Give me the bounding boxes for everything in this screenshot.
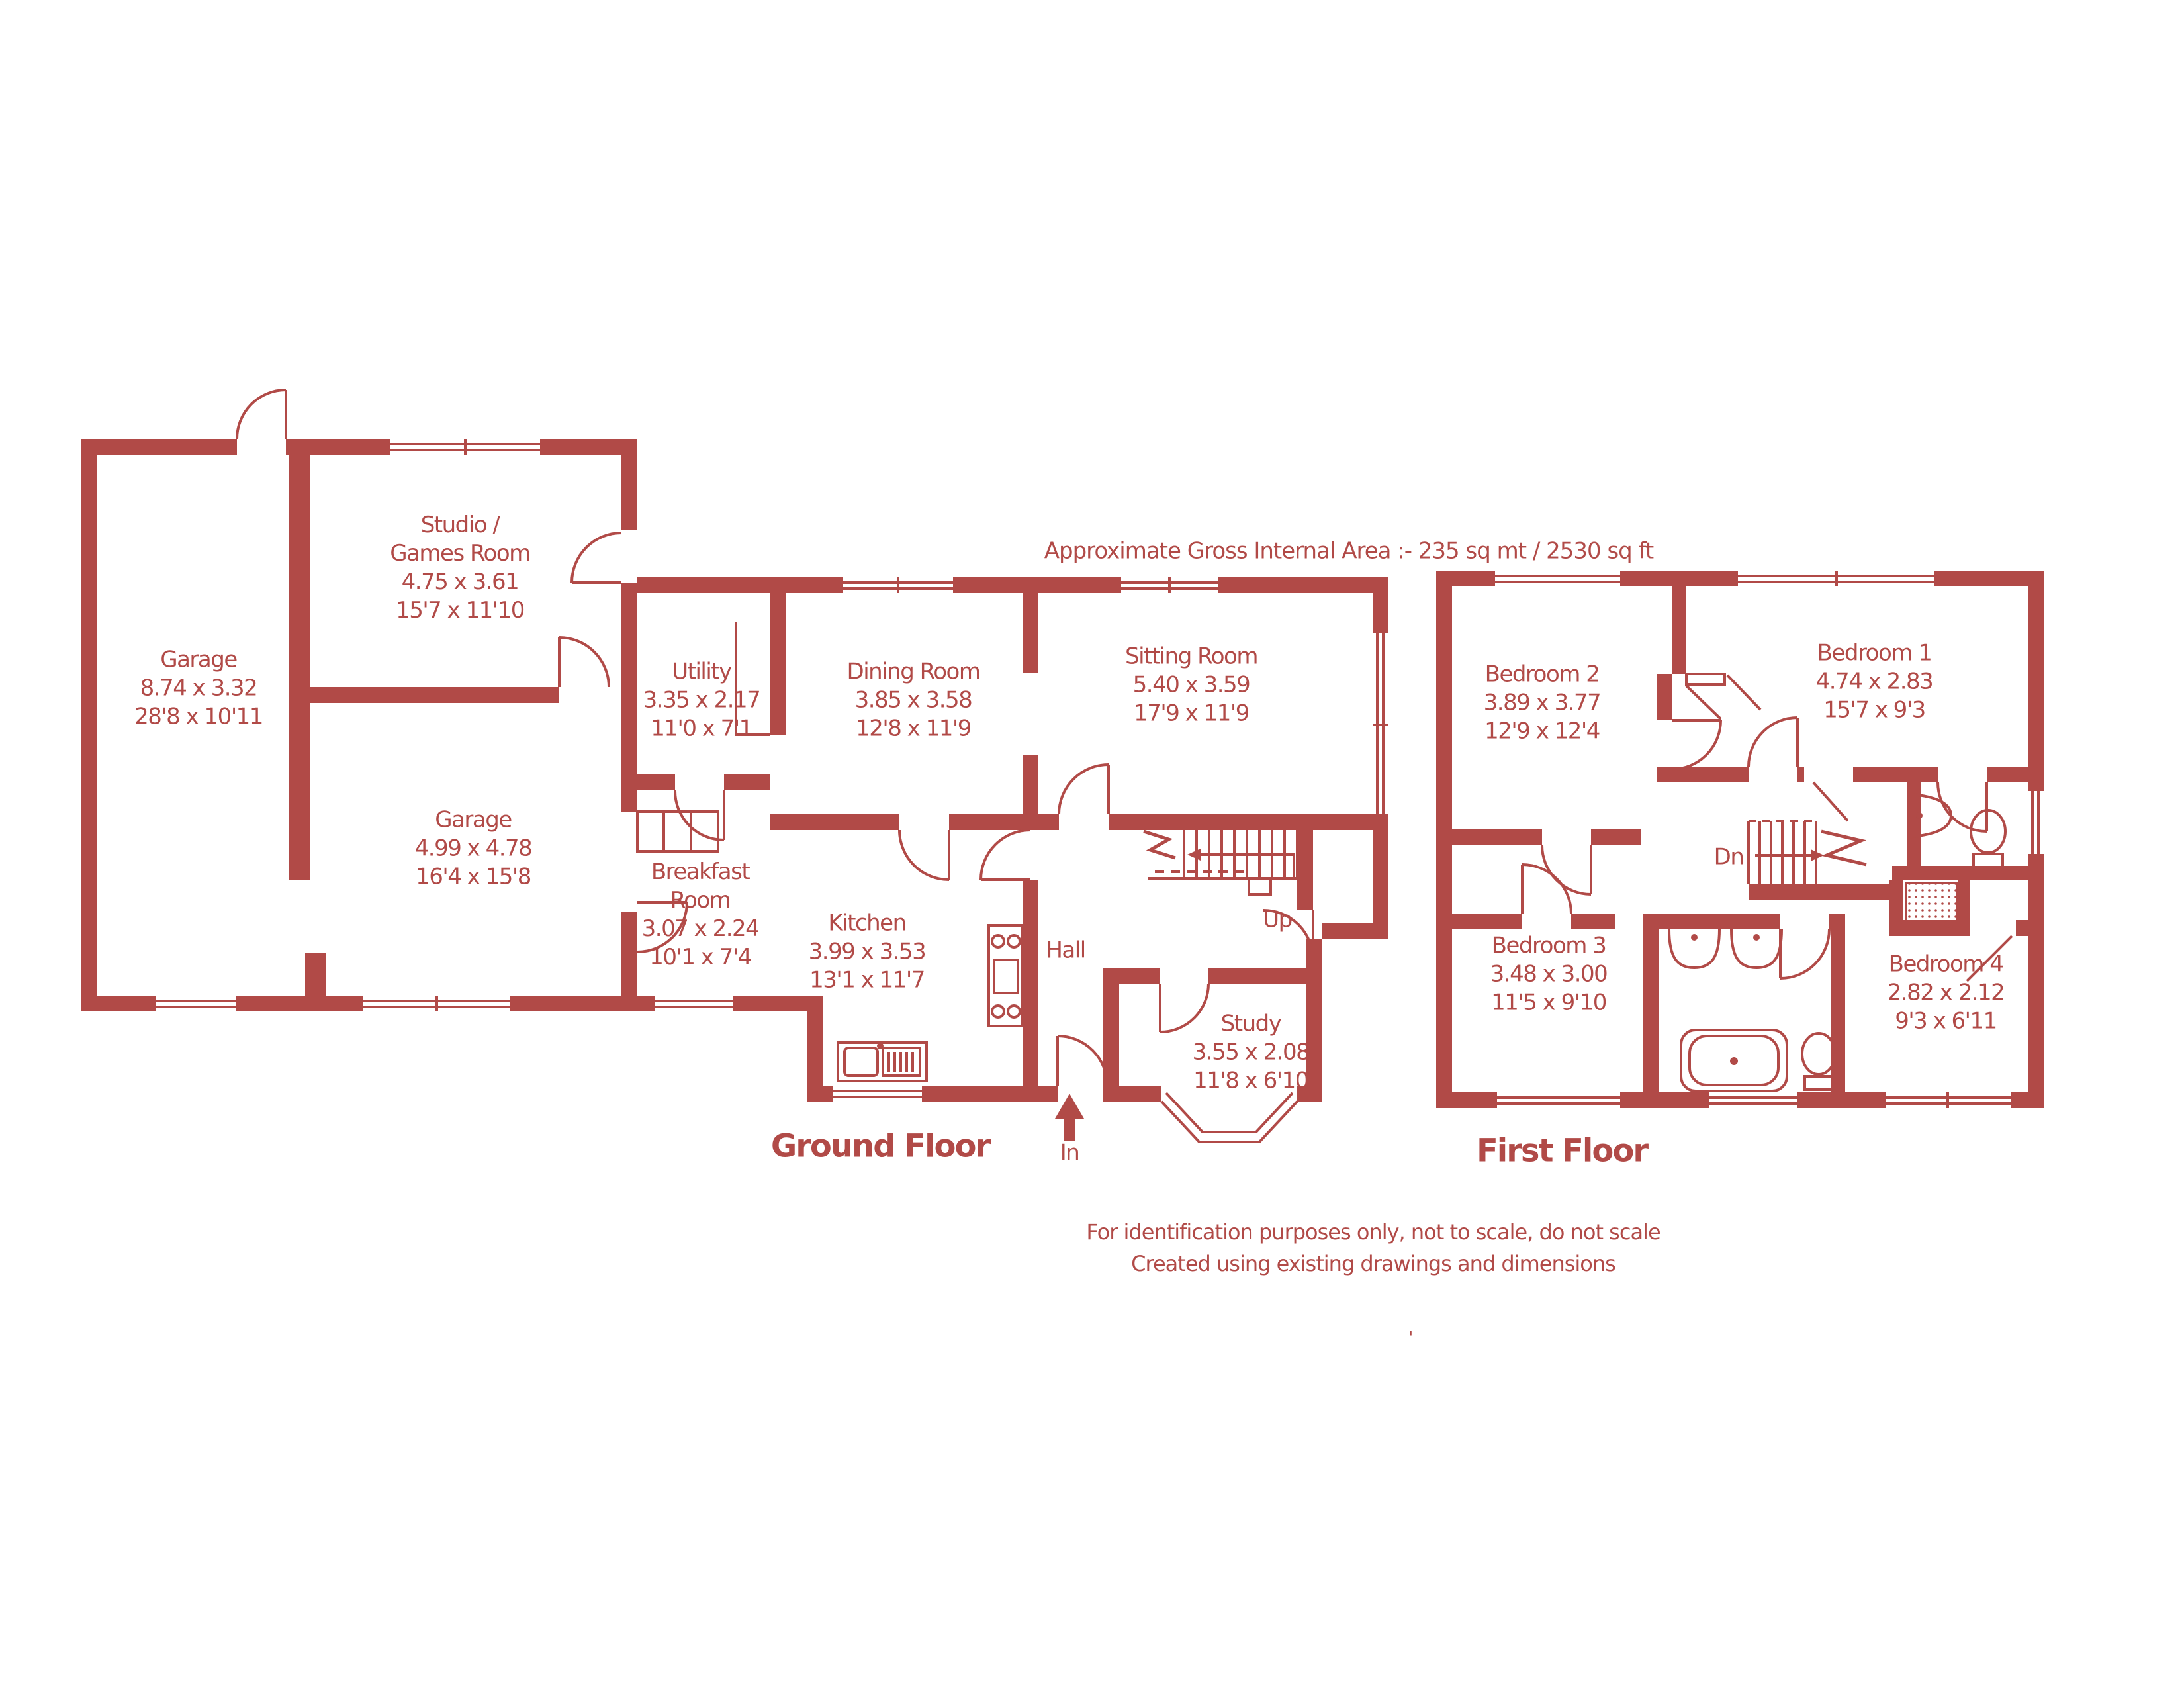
room-label-bedroom1: Bedroom 1 4.74 x 2.83 15'7 x 9'3 — [1816, 639, 1933, 725]
window-icon — [1707, 1092, 1798, 1108]
room-dim-imperial: 15'7 x 11'10 — [390, 596, 530, 625]
door-leaf-icon — [1813, 782, 1848, 821]
door-arc-icon — [1059, 765, 1109, 814]
floorplan-canvas — [0, 0, 2184, 1688]
room-label-sitting: Sitting Room 5.40 x 3.59 17'9 x 11'9 — [1125, 643, 1257, 728]
room-dim-imperial: 16'4 x 15'8 — [415, 863, 532, 892]
door-arc-icon — [981, 830, 1030, 880]
room-label-hall: Hall — [1046, 937, 1085, 965]
room-dim-metric: 2.82 x 2.12 — [1888, 979, 2005, 1008]
window-icon — [831, 1086, 923, 1102]
room-name: Studio / — [390, 511, 530, 539]
room-label-garage-square: Garage 4.99 x 4.78 16'4 x 15'8 — [415, 806, 532, 892]
room-label-bedroom4: Bedroom 4 2.82 x 2.12 9'3 x 6'11 — [1888, 951, 2005, 1036]
window-icon — [1120, 577, 1219, 593]
shower-icon — [1906, 883, 1958, 933]
door-arc-icon — [237, 390, 286, 439]
floorplan-page: { "colors": { "accent": "#b14a47" }, "he… — [0, 0, 2184, 1688]
window-icon — [2028, 790, 2044, 855]
window-icon — [1884, 1092, 2012, 1108]
bay-window-icon — [1161, 1093, 1297, 1142]
door-arc-icon — [559, 637, 609, 687]
room-dim-imperial: 11'8 x 6'10 — [1193, 1067, 1310, 1096]
bath-icon — [1681, 1030, 1787, 1091]
room-label-studio: Studio / Games Room 4.75 x 3.61 15'7 x 1… — [390, 511, 530, 625]
room-dim-imperial: 12'9 x 12'4 — [1484, 718, 1601, 746]
room-name: Breakfast — [642, 858, 759, 886]
room-name: Dining Room — [847, 658, 980, 686]
door-arc-icon — [1522, 865, 1571, 914]
room-dim-metric: 3.99 x 3.53 — [809, 938, 926, 966]
first-floor-title: First Floor — [1477, 1137, 1647, 1166]
room-name: Garage — [134, 646, 263, 675]
area-text: Approximate Gross Internal Area :- 235 s… — [1044, 538, 1654, 566]
room-name: Garage — [415, 806, 532, 835]
bathroom-sink-icon — [1731, 929, 1782, 968]
window-icon — [1737, 571, 1936, 586]
room-dim-imperial: 10'1 x 7'4 — [642, 943, 759, 972]
stairs-icon — [1144, 830, 1297, 894]
disclaimer: For identification purposes only, not to… — [1086, 1216, 1660, 1280]
room-dim-imperial: 12'8 x 11'9 — [847, 715, 980, 743]
bathroom-toilet-icon — [1802, 1033, 1835, 1090]
window-icon — [1496, 1092, 1621, 1108]
room-label-breakfast: Breakfast Room 3.07 x 2.24 10'1 x 7'4 — [642, 858, 759, 972]
room-dim-imperial: 11'5 x 9'10 — [1490, 989, 1608, 1017]
bathroom-sink-icon — [1669, 929, 1719, 968]
room-label-bedroom3: Bedroom 3 3.48 x 3.00 11'5 x 9'10 — [1490, 932, 1608, 1017]
window-icon — [362, 996, 511, 1011]
room-name: Bedroom 1 — [1816, 639, 1933, 668]
room-label-study: Study 3.55 x 2.08 11'8 x 6'10 — [1193, 1010, 1310, 1096]
stairs-dn-label: Dn — [1714, 843, 1744, 872]
room-name: Bedroom 3 — [1490, 932, 1608, 961]
window-icon — [654, 996, 735, 1011]
room-name: Hall — [1046, 937, 1085, 965]
room-label-kitchen: Kitchen 3.99 x 3.53 13'1 x 11'7 — [809, 910, 926, 995]
gross-internal-area-note: Approximate Gross Internal Area :- 235 s… — [1044, 538, 1654, 566]
room-name: Utility — [643, 658, 760, 686]
room-dim-imperial: 13'1 x 11'7 — [809, 966, 926, 995]
door-arc-icon — [1780, 929, 1829, 978]
door-arc-icon — [1672, 720, 1721, 769]
room-dim-metric: 4.75 x 3.61 — [390, 568, 530, 596]
window-icon — [842, 577, 954, 593]
room-dim-metric: 3.48 x 3.00 — [1490, 961, 1608, 989]
room-name: Bedroom 4 — [1888, 951, 2005, 979]
window-icon — [1373, 632, 1388, 818]
room-dim-imperial: 9'3 x 6'11 — [1888, 1008, 2005, 1036]
room-dim-imperial: 15'7 x 9'3 — [1816, 696, 1933, 725]
door-arc-icon — [675, 790, 724, 840]
ground-floor-title: Ground Floor — [771, 1133, 989, 1161]
door-arc-icon — [1058, 1036, 1107, 1086]
break-line-icon — [1144, 831, 1175, 858]
door-arc-icon — [1542, 845, 1591, 894]
break-line-icon — [1821, 831, 1866, 865]
stove-icon — [989, 925, 1022, 1026]
stairs-up-label: Up — [1263, 906, 1291, 935]
room-dim-metric: 3.89 x 3.77 — [1484, 689, 1601, 718]
room-label-dining: Dining Room 3.85 x 3.58 12'8 x 11'9 — [847, 658, 980, 743]
room-dim-imperial: 17'9 x 11'9 — [1125, 700, 1257, 728]
steps-icon — [637, 812, 718, 851]
door-arc-icon — [899, 830, 949, 880]
window-icon — [155, 996, 237, 1011]
room-dim-metric: 8.74 x 3.32 — [134, 675, 263, 703]
room-label-garage-long: Garage 8.74 x 3.32 28'8 x 10'11 — [134, 646, 263, 731]
stairs-icon — [1749, 821, 1866, 884]
entrance-in-label: In — [1060, 1139, 1079, 1168]
room-dim-imperial: 28'8 x 10'11 — [134, 703, 263, 731]
room-dim-metric: 3.85 x 3.58 — [847, 686, 980, 715]
room-dim-metric: 5.40 x 3.59 — [1125, 671, 1257, 700]
stray-mark: ' — [1408, 1325, 1412, 1353]
room-dim-metric: 3.07 x 2.24 — [642, 915, 759, 943]
door-arc-icon — [572, 533, 621, 583]
room-dim-metric: 3.35 x 2.17 — [643, 686, 760, 715]
kitchen-sink-icon — [838, 1043, 927, 1081]
door-arc-icon — [1749, 718, 1797, 767]
room-name: Sitting Room — [1125, 643, 1257, 671]
disclaimer-line2: Created using existing drawings and dime… — [1086, 1248, 1660, 1280]
room-name: Kitchen — [809, 910, 926, 938]
room-dim-metric: 4.99 x 4.78 — [415, 835, 532, 863]
window-icon — [389, 439, 541, 455]
window-icon — [1494, 571, 1621, 586]
room-dim-metric: 3.55 x 2.08 — [1193, 1039, 1310, 1067]
entrance-arrow-icon — [1055, 1094, 1084, 1141]
door-arc-icon — [1938, 782, 1987, 831]
room-dim-metric: 4.74 x 2.83 — [1816, 668, 1933, 696]
room-dim-imperial: 11'0 x 7'1 — [643, 715, 760, 743]
wardrobe-icon — [1686, 674, 1760, 719]
room-name: Room — [642, 886, 759, 915]
room-name: Bedroom 2 — [1484, 661, 1601, 689]
room-name: Games Room — [390, 539, 530, 568]
disclaimer-line1: For identification purposes only, not to… — [1086, 1216, 1660, 1248]
room-name: Study — [1193, 1010, 1310, 1039]
room-label-utility: Utility 3.35 x 2.17 11'0 x 7'1 — [643, 658, 760, 743]
room-label-bedroom2: Bedroom 2 3.89 x 3.77 12'9 x 12'4 — [1484, 661, 1601, 746]
